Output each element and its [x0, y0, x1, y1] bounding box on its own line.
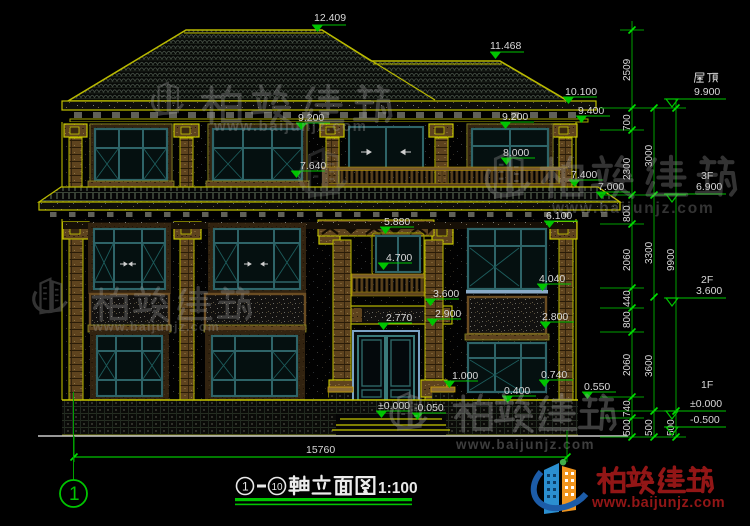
svg-text:2509: 2509 [622, 58, 633, 81]
svg-text:3.600: 3.600 [696, 285, 722, 297]
svg-text:1.000: 1.000 [452, 370, 478, 382]
svg-text:2.800: 2.800 [542, 311, 568, 323]
svg-text:11.468: 11.468 [490, 40, 521, 52]
svg-text:9.200: 9.200 [502, 111, 528, 123]
svg-text:3.600: 3.600 [433, 288, 459, 300]
svg-text:±0.000: ±0.000 [378, 400, 410, 412]
svg-text:-0.500: -0.500 [690, 414, 720, 426]
svg-text:1F: 1F [701, 379, 713, 391]
svg-text:2060: 2060 [622, 248, 633, 271]
svg-text:500: 500 [644, 419, 655, 436]
svg-text:1:100: 1:100 [378, 480, 418, 497]
svg-text:800: 800 [622, 311, 633, 328]
svg-text:10: 10 [272, 482, 284, 493]
svg-text:-0.050: -0.050 [414, 402, 444, 414]
svg-text:2.770: 2.770 [386, 312, 412, 324]
svg-text:3300: 3300 [644, 241, 655, 264]
svg-text:www.baijunjz.com: www.baijunjz.com [455, 437, 595, 452]
svg-text:12.409: 12.409 [314, 12, 346, 24]
svg-text:www.baijunjz.com: www.baijunjz.com [591, 495, 725, 511]
svg-text:740: 740 [622, 400, 633, 417]
svg-text:www.baijunjz.com: www.baijunjz.com [92, 320, 220, 334]
svg-text:9900: 9900 [666, 248, 677, 271]
svg-text:700: 700 [622, 114, 633, 131]
svg-text:3600: 3600 [644, 354, 655, 377]
svg-text:9.400: 9.400 [578, 105, 604, 117]
svg-text:2060: 2060 [622, 353, 633, 376]
svg-text:0.400: 0.400 [504, 385, 530, 397]
svg-text:4.700: 4.700 [386, 252, 412, 264]
svg-text:1: 1 [69, 484, 80, 505]
svg-text:www.baijunjz.com: www.baijunjz.com [551, 200, 715, 217]
svg-text:15760: 15760 [306, 444, 335, 456]
svg-text:1: 1 [242, 480, 249, 494]
svg-text:10.100: 10.100 [565, 86, 597, 98]
svg-text:440: 440 [622, 290, 633, 307]
svg-text:5.880: 5.880 [384, 216, 410, 228]
svg-text:www.baijunjz.com: www.baijunjz.com [213, 118, 367, 135]
svg-text:0.550: 0.550 [584, 381, 610, 393]
svg-text:4.040: 4.040 [539, 273, 565, 285]
svg-text:9.900: 9.900 [694, 86, 720, 98]
svg-text:±0.000: ±0.000 [690, 398, 722, 410]
svg-text:2.900: 2.900 [435, 308, 461, 320]
svg-text:500: 500 [622, 419, 633, 436]
svg-text:0.740: 0.740 [541, 369, 567, 381]
